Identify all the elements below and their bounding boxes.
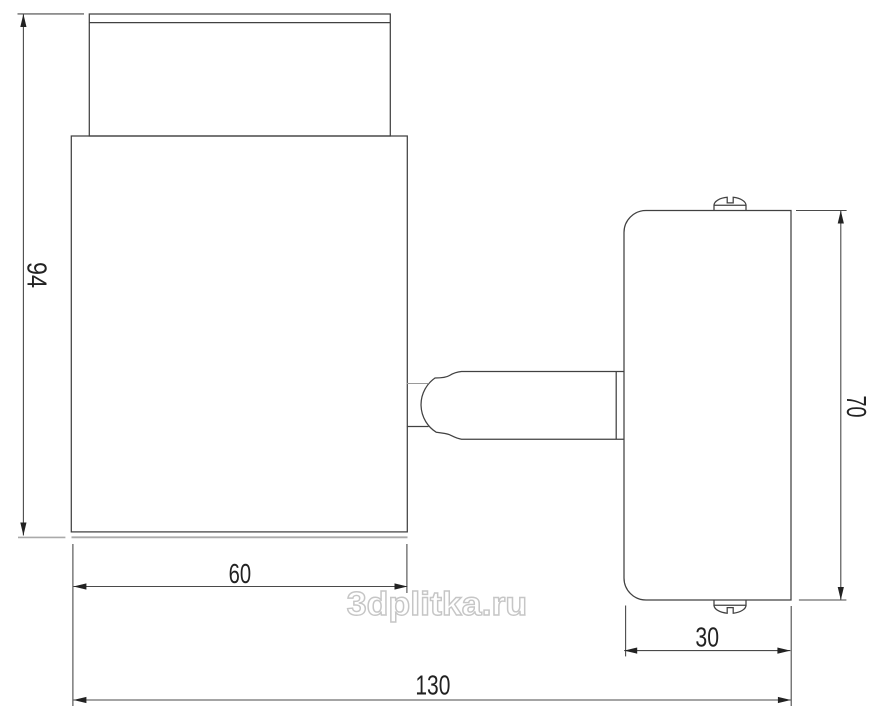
svg-text:130: 130 (415, 670, 450, 701)
svg-text:3dplitka.ru: 3dplitka.ru (347, 586, 528, 623)
svg-text:60: 60 (229, 558, 252, 589)
svg-text:70: 70 (841, 396, 872, 418)
svg-text:30: 30 (695, 621, 719, 652)
svg-text:94: 94 (21, 262, 52, 288)
